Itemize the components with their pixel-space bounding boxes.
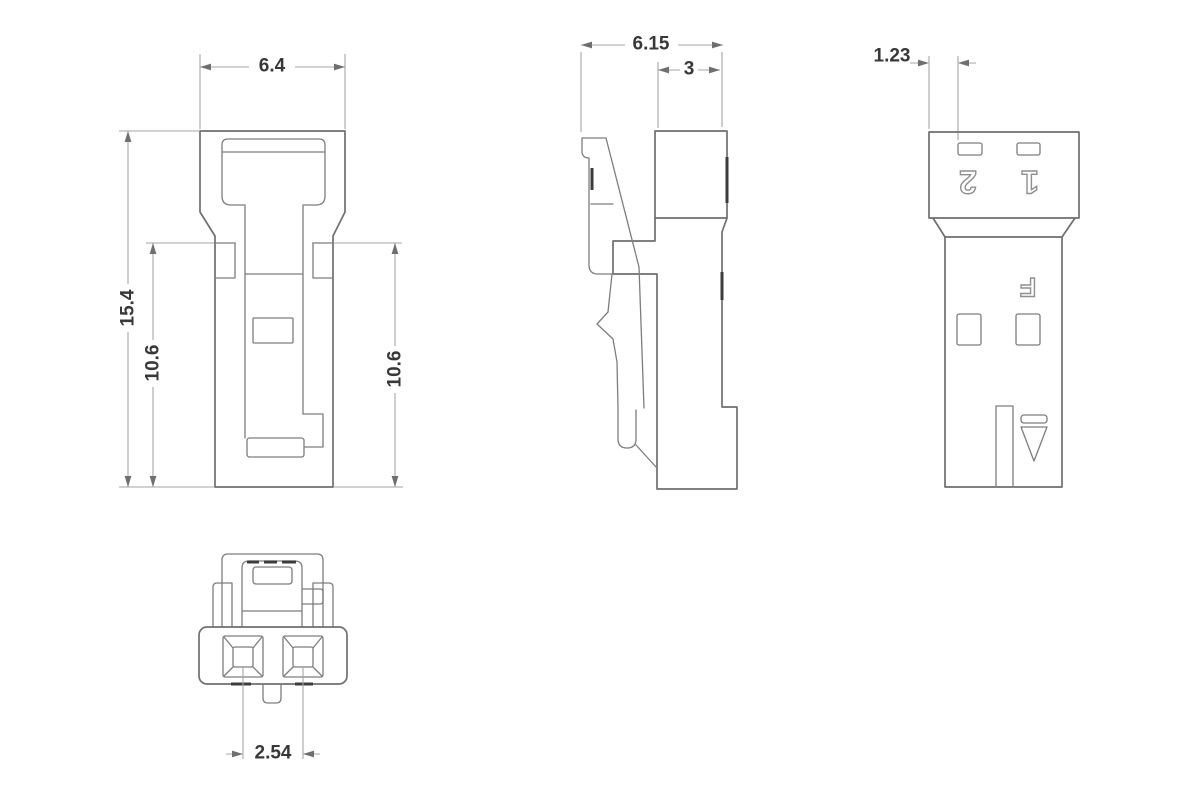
back-view-dimensions: 1.23 [874, 46, 976, 141]
back-view-outline [929, 132, 1079, 487]
back-body [945, 237, 1062, 487]
back-slot-1 [1017, 143, 1040, 155]
front-mating-opening [222, 139, 325, 205]
bottom-view-outline [199, 554, 347, 703]
bottom-view: 2.54 [199, 554, 347, 764]
dim-front-width: 6.4 [259, 56, 286, 77]
dim-line-total-height [119, 131, 403, 487]
back-view-labels: 2 1 F [959, 164, 1039, 302]
back-transition [933, 218, 1075, 237]
technical-drawing-canvas: 6.4 15.4 10.6 10.6 [0, 0, 1200, 800]
arrowhead-down-icon [392, 476, 399, 487]
bottom-latch-inner [242, 561, 302, 627]
front-view-outline [200, 131, 345, 487]
back-window-left [957, 314, 981, 345]
dim-side-total-depth: 6.15 [633, 34, 670, 55]
dim-front-inner-height-right: 10.6 [385, 351, 406, 388]
arrowhead-right-icon [232, 751, 243, 758]
pin-2-label: 2 [959, 164, 977, 200]
front-view: 6.4 15.4 10.6 10.6 [118, 54, 406, 487]
cavity-inner [293, 647, 313, 667]
arrowhead-left-icon [581, 42, 592, 49]
dim-line-slot-offset [910, 56, 976, 140]
side-mating-block [655, 131, 727, 218]
back-slot-2 [958, 143, 982, 155]
front-cavity-legs [245, 205, 303, 438]
bottom-center-notch [263, 684, 281, 703]
dim-front-inner-height-left: 10.6 [143, 345, 164, 382]
dim-front-total-height: 15.4 [118, 289, 139, 326]
bottom-housing [199, 627, 347, 684]
arrowhead-up-icon [150, 243, 157, 254]
arrowhead-down-icon [125, 476, 132, 487]
bottom-latch-window [253, 567, 292, 584]
pin-1-label: 1 [1021, 164, 1039, 200]
side-view: 6.15 3 [581, 34, 737, 490]
arrowhead-left-icon [200, 64, 211, 71]
bottom-latch-outer [222, 554, 323, 627]
dim-bottom-pitch: 2.54 [255, 743, 292, 764]
front-notch-right [313, 243, 333, 278]
arrowhead-right-icon [334, 64, 345, 71]
front-cavity-step [303, 414, 323, 447]
front-view-dimensions: 6.4 15.4 10.6 10.6 [118, 54, 406, 487]
dim-back-slot-offset: 1.23 [874, 46, 911, 67]
dim-line-total-depth [581, 45, 723, 132]
bottom-view-dimensions: 2.54 [226, 667, 320, 764]
back-mating-block [929, 132, 1079, 218]
arrowhead-left-icon [303, 751, 314, 758]
arrowhead-down-icon [150, 476, 157, 487]
arrowhead-left-icon [658, 67, 669, 74]
arrowhead-right-icon [709, 67, 720, 74]
side-body-outline [613, 218, 737, 489]
side-view-outline [582, 131, 737, 489]
front-bottom-slot [247, 438, 304, 457]
arrowhead-left-icon [958, 60, 969, 67]
side-view-dimensions: 6.15 3 [581, 34, 723, 133]
molded-arrow-bar [1021, 415, 1047, 423]
back-window-right [1016, 314, 1040, 345]
back-rib-strip [996, 406, 1013, 487]
back-view: 1.23 2 1 F [874, 46, 1079, 488]
dim-side-mating-depth: 3 [684, 59, 695, 80]
molded-arrow-triangle-icon [1021, 427, 1047, 461]
front-notch-left [215, 243, 235, 278]
polarity-f-label: F [1020, 272, 1037, 302]
cavity-inner [233, 647, 253, 667]
arrowhead-up-icon [392, 243, 399, 254]
arrowhead-up-icon [125, 131, 132, 142]
arrowhead-right-icon [712, 42, 723, 49]
front-lance-window [253, 318, 293, 343]
arrowhead-right-icon [918, 60, 929, 67]
side-shading-marks [592, 157, 727, 300]
